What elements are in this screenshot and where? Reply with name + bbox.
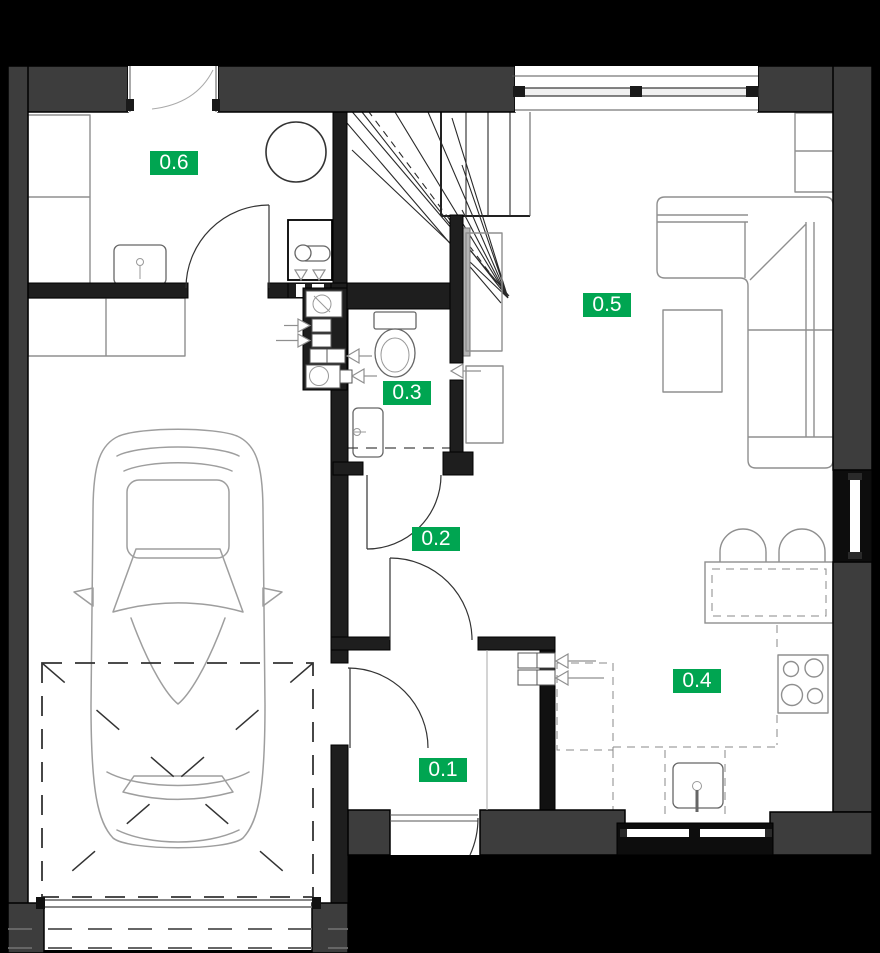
garage-door-post	[312, 897, 321, 909]
supply-grille	[312, 334, 331, 347]
top-wall-middle	[218, 66, 515, 112]
kitchen-bar-counter	[705, 562, 833, 623]
window-frame-block	[212, 99, 220, 111]
side-window-frame-block	[848, 473, 862, 480]
right-wall-lower	[833, 562, 872, 812]
window-mullion	[630, 86, 642, 97]
room-label-text: 0.6	[159, 151, 188, 174]
room-label-0-1: 0.1	[419, 758, 467, 782]
right-wall-upper	[833, 66, 872, 470]
floor-plan-page: 0.6 0.5 0.3 0.2 0.1 0.4	[0, 0, 880, 953]
kitchen-window-box	[617, 823, 773, 855]
kitchen-window-glass	[700, 829, 765, 837]
kitchen-window-frame-block	[765, 829, 772, 837]
entrance-south-wall-west	[348, 810, 390, 855]
kitchen-window	[617, 823, 773, 855]
entrance-south-wall-east	[480, 810, 625, 855]
floor-plan-drawing: 0.6 0.5 0.3 0.2 0.1 0.4	[0, 0, 880, 953]
side-window	[833, 470, 872, 562]
window-mullion	[746, 86, 758, 97]
hall-south-wall-west	[331, 637, 390, 650]
garage-door-post	[36, 897, 45, 909]
room-label-0-2: 0.2	[412, 527, 460, 551]
room-label-0-4: 0.4	[673, 669, 721, 693]
window-frame-block	[126, 99, 134, 111]
room-label-text: 0.1	[428, 758, 457, 781]
room-label-text: 0.4	[682, 669, 712, 692]
window-mullion	[513, 86, 525, 97]
kitchen-window-glass	[627, 829, 689, 837]
bottom-right-corner-wall	[770, 812, 872, 855]
duct-cylinder-end	[295, 245, 311, 261]
wc-east-wall-lower	[450, 380, 463, 452]
hall-door-post	[443, 452, 473, 475]
supply-grille	[312, 319, 331, 332]
utility-window-opening	[128, 66, 218, 112]
room-label-text: 0.5	[592, 293, 621, 316]
wc-north-wall	[347, 283, 463, 309]
room-label-0-5: 0.5	[583, 293, 631, 317]
room-label-text: 0.2	[421, 527, 450, 550]
hall-south-wall-east	[478, 637, 555, 650]
room-label-0-6: 0.6	[150, 151, 198, 175]
room-label-0-3: 0.3	[383, 381, 431, 405]
fan-outlet	[340, 370, 352, 383]
utility-garage-wall	[28, 283, 188, 298]
utility-window	[126, 66, 220, 112]
toilet-tank	[374, 312, 416, 329]
side-window-frame-block	[848, 552, 862, 559]
wc-south-wall	[333, 462, 363, 475]
wc-east-wall-upper	[450, 215, 463, 363]
garage-east-wall-lower	[331, 745, 348, 905]
utility-door-post	[268, 283, 288, 298]
stair-west-wall	[333, 100, 347, 290]
kitchen-window-frame-block	[620, 829, 627, 837]
room-label-text: 0.3	[392, 381, 421, 404]
side-window-glass	[850, 479, 860, 553]
living-room-window-band	[512, 66, 758, 112]
left-wall	[8, 66, 28, 950]
